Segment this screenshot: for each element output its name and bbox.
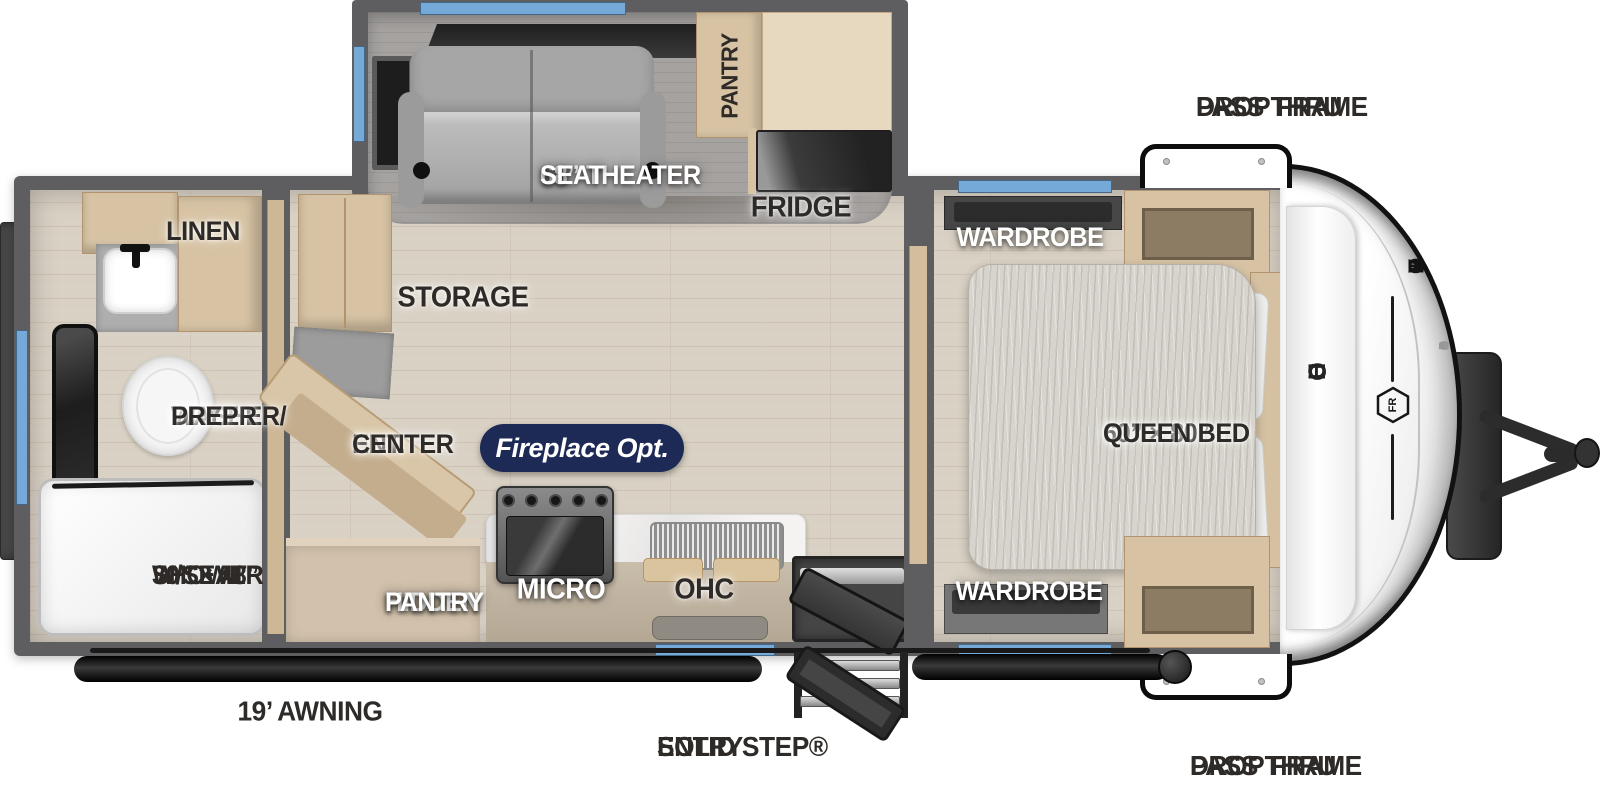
pantry-counter [762, 12, 892, 138]
label-line: SEAT [540, 158, 604, 192]
faucet-handle-icon [132, 250, 140, 268]
awning-tube [74, 656, 762, 682]
forest-river-logo-icon: FR [1376, 386, 1410, 424]
theater-seat-seam [530, 50, 533, 202]
stove-burners [502, 492, 608, 508]
floorplan-canvas: FR FOREST RIVER SOLAIRE 68” THEATER SEAT… [0, 0, 1600, 812]
fireplace-option-badge: Fireplace Opt. [480, 424, 684, 472]
fireplace-option-label: Fireplace Opt. [495, 433, 668, 464]
brand-deco-line [1391, 434, 1394, 520]
window-bathroom-side [16, 330, 28, 505]
label-line: QUEEN BED [1103, 416, 1250, 450]
svg-text:FR: FR [1387, 398, 1399, 413]
upper-cabinet-seam [344, 198, 346, 328]
kitchen-tray [652, 616, 768, 640]
wardrobe-bottom-opening [1142, 586, 1254, 634]
screw-icon [1163, 158, 1170, 165]
pantry-label: PANTRY [716, 33, 745, 118]
kitchen-ohc-label: OHC [674, 572, 733, 609]
hitch-coupler [1574, 438, 1600, 468]
fridge-side-rail [748, 128, 756, 194]
screw-icon [1258, 158, 1265, 165]
window-bedroom-top [958, 180, 1112, 193]
bathroom-sink [103, 248, 177, 314]
shower [38, 478, 266, 636]
label-line: PREP [171, 399, 238, 433]
label-line: CENTER [352, 427, 454, 461]
window-slideout-side [353, 46, 365, 142]
fridge-label: FRIDGE [751, 190, 851, 227]
label-line: PASS THRU [1190, 748, 1336, 784]
window-slideout-top [420, 2, 626, 15]
awning-rail [90, 648, 1150, 653]
front-ohc-cabinet [1286, 206, 1356, 630]
micro-label: MICRO [517, 572, 606, 609]
awning-end-cap [1158, 650, 1192, 684]
bedroom-door [909, 246, 927, 564]
cupholder-icon [413, 162, 430, 179]
label-line: PASS THRU [1196, 89, 1342, 125]
awning-label: 19’ AWNING [238, 693, 383, 728]
linen-label: LINEN [166, 214, 240, 248]
label-line: PANTRY [385, 585, 484, 619]
oven-window [506, 516, 604, 576]
brand-deco-line [1391, 296, 1394, 382]
wardrobe-top-opening [1142, 208, 1254, 260]
wardrobe-bottom-label: WARDROBE [955, 574, 1102, 608]
awning-tube [912, 654, 1170, 680]
pass-thru-door-top [1140, 144, 1292, 188]
label-line: W/SEAT [152, 558, 246, 592]
screw-icon [1258, 678, 1265, 685]
storage-label: STORAGE [397, 280, 528, 317]
label-line: ENTRY [657, 729, 743, 765]
theater-armrest-left [398, 92, 424, 208]
fridge [756, 130, 892, 192]
wardrobe-top-label: WARDROBE [956, 220, 1103, 254]
